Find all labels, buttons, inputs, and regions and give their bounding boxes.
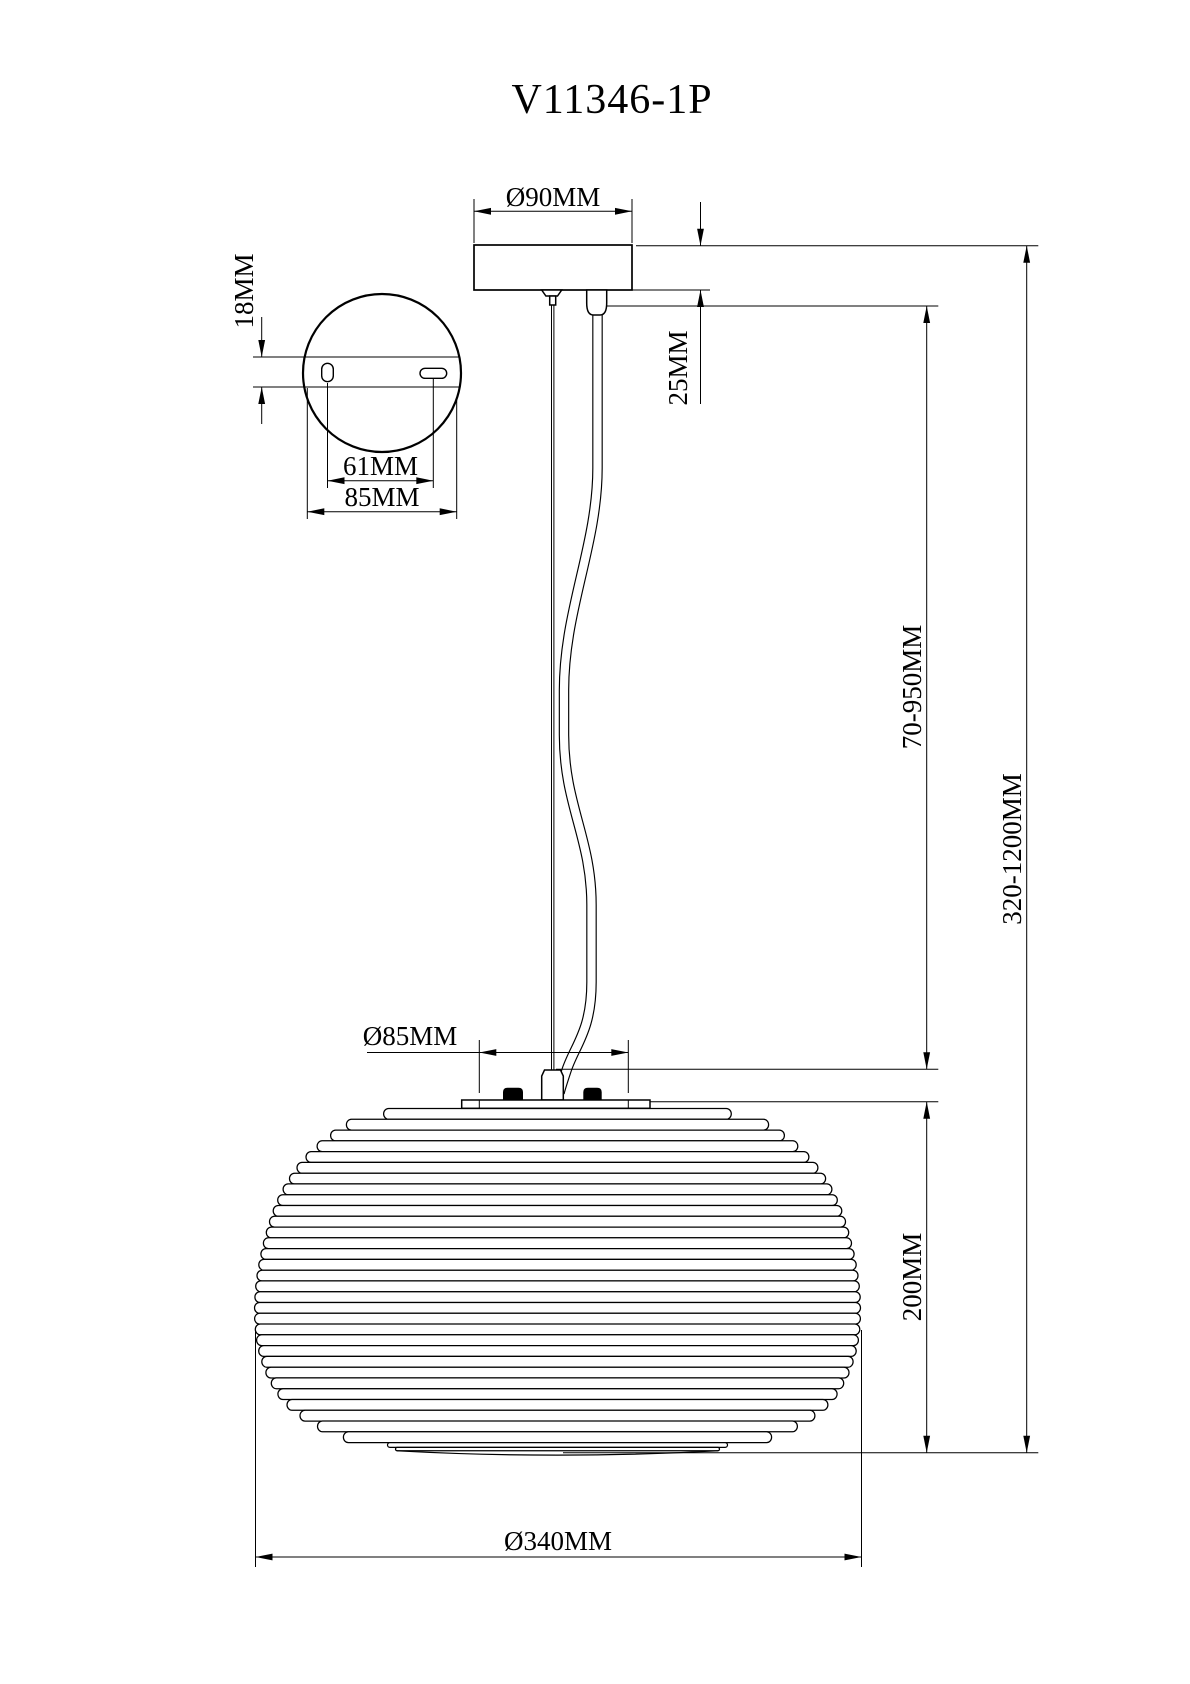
dim-label-shade-diameter: Ø340MM [504, 1526, 612, 1556]
power-cable [560, 310, 598, 1093]
shade-rib [287, 1400, 828, 1411]
shade-rib [266, 1227, 848, 1238]
shade-rib [266, 1367, 849, 1378]
drawing-sheet: V11346-1P 18MM 61MM 85MM [0, 0, 1190, 1684]
dim-label-canopy-diameter: Ø90MM [506, 182, 601, 212]
shade-rib [278, 1195, 838, 1206]
shade-rib [257, 1335, 859, 1346]
shade-rib [259, 1259, 856, 1270]
shade-rib [343, 1432, 771, 1443]
mount-slot-left [322, 363, 334, 381]
shade-rib [278, 1389, 837, 1400]
dim-label-overall-height: 320-1200MM [997, 773, 1027, 925]
shade-ribs [255, 1109, 861, 1443]
shade-rib [297, 1162, 818, 1173]
fitter-plate [462, 1100, 650, 1108]
fitter-nipple [542, 1070, 564, 1100]
shade-rib [306, 1152, 809, 1163]
shade-rib [346, 1119, 768, 1130]
dim-label-shade-fitter-diameter: Ø85MM [363, 1021, 458, 1051]
shade-rib [317, 1141, 798, 1152]
fitter-nut-right [583, 1088, 601, 1100]
dim-label-canopy-height: 25MM [663, 330, 693, 405]
shade-rib [300, 1410, 815, 1421]
shade-rib [255, 1313, 861, 1324]
canopy: Ø90MM [474, 182, 632, 290]
shade-rib [257, 1270, 858, 1281]
shade-rib [318, 1421, 798, 1432]
dim-label-mount-plate-width: 85MM [344, 482, 419, 512]
drawing-title: V11346-1P [511, 77, 712, 123]
shade-rib [261, 1249, 854, 1260]
ceiling-plate-detail-view: 18MM 61MM 85MM [229, 253, 461, 519]
shade-rib [271, 1378, 843, 1389]
dim-label-suspension-length: 70-950MM [897, 625, 927, 750]
shade-rib [256, 1281, 860, 1292]
shade-rib [259, 1346, 857, 1357]
dim-label-mount-plate-thickness: 18MM [229, 253, 259, 328]
shade-rib [255, 1324, 860, 1335]
dim-label-mount-slot-spacing: 61MM [343, 451, 418, 481]
shade-rib [331, 1130, 785, 1141]
shade-rib [283, 1184, 832, 1195]
shade-rib [263, 1238, 851, 1249]
shade-rib [270, 1216, 846, 1227]
shade-rib [290, 1173, 826, 1184]
cable-gland [587, 290, 607, 315]
technical-drawing: V11346-1P 18MM 61MM 85MM [0, 0, 1190, 1684]
fitter-nut-left [503, 1088, 523, 1100]
shade-fitter [462, 1070, 650, 1108]
shade-rib [255, 1292, 860, 1303]
shade [255, 1109, 861, 1456]
mount-slot-right [420, 368, 447, 378]
dim-label-shade-height: 200MM [897, 1233, 927, 1322]
shade-rib [255, 1303, 861, 1314]
shade-rib [262, 1356, 853, 1367]
shade-rib [384, 1109, 732, 1120]
shade-rib [273, 1206, 842, 1217]
